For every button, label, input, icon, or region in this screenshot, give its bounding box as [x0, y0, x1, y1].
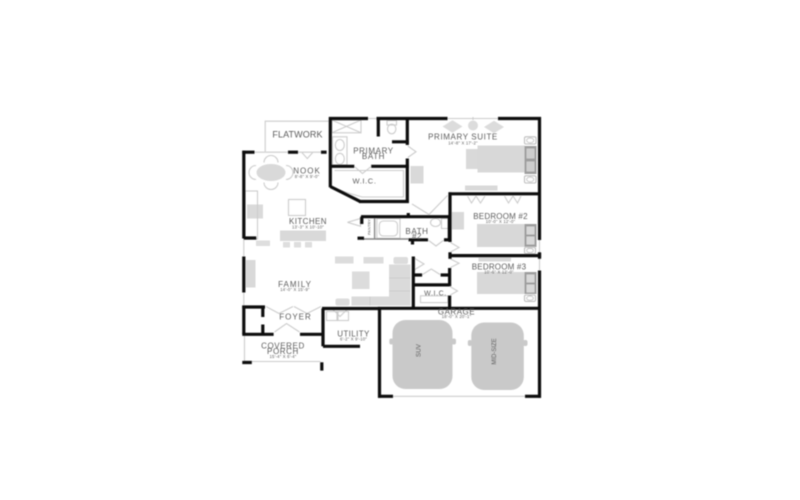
svg-text:14'-8" X 17'-2": 14'-8" X 17'-2": [448, 140, 478, 145]
svg-text:MID-SIZE: MID-SIZE: [492, 338, 498, 364]
svg-text:10'-0" X 12'-0": 10'-0" X 12'-0": [486, 219, 516, 224]
svg-text:15'-4" X 6'-4": 15'-4" X 6'-4": [270, 354, 297, 359]
svg-text:6'-2" X 9'-10": 6'-2" X 9'-10": [340, 336, 367, 341]
svg-text:SUV: SUV: [416, 343, 423, 357]
svg-text:BATH: BATH: [362, 152, 385, 161]
svg-text:13'-3" X 10'-10": 13'-3" X 10'-10": [292, 224, 324, 229]
svg-text:18'-0" X 20'-1": 18'-0" X 20'-1": [442, 314, 472, 319]
svg-text:W.I.C.: W.I.C.: [424, 291, 447, 298]
svg-text:W.I.C.: W.I.C.: [352, 176, 376, 185]
svg-text:#2: #2: [412, 232, 422, 241]
svg-text:FOYER: FOYER: [279, 313, 312, 322]
svg-text:FLATWORK: FLATWORK: [272, 129, 322, 139]
svg-text:PANTRY: PANTRY: [366, 219, 371, 235]
svg-text:8'-8" X 9'-0": 8'-8" X 9'-0": [295, 174, 320, 179]
svg-text:14'-0" X 15'-9": 14'-0" X 15'-9": [280, 287, 310, 292]
svg-text:10'-6" X 12'-0": 10'-6" X 12'-0": [484, 269, 514, 274]
